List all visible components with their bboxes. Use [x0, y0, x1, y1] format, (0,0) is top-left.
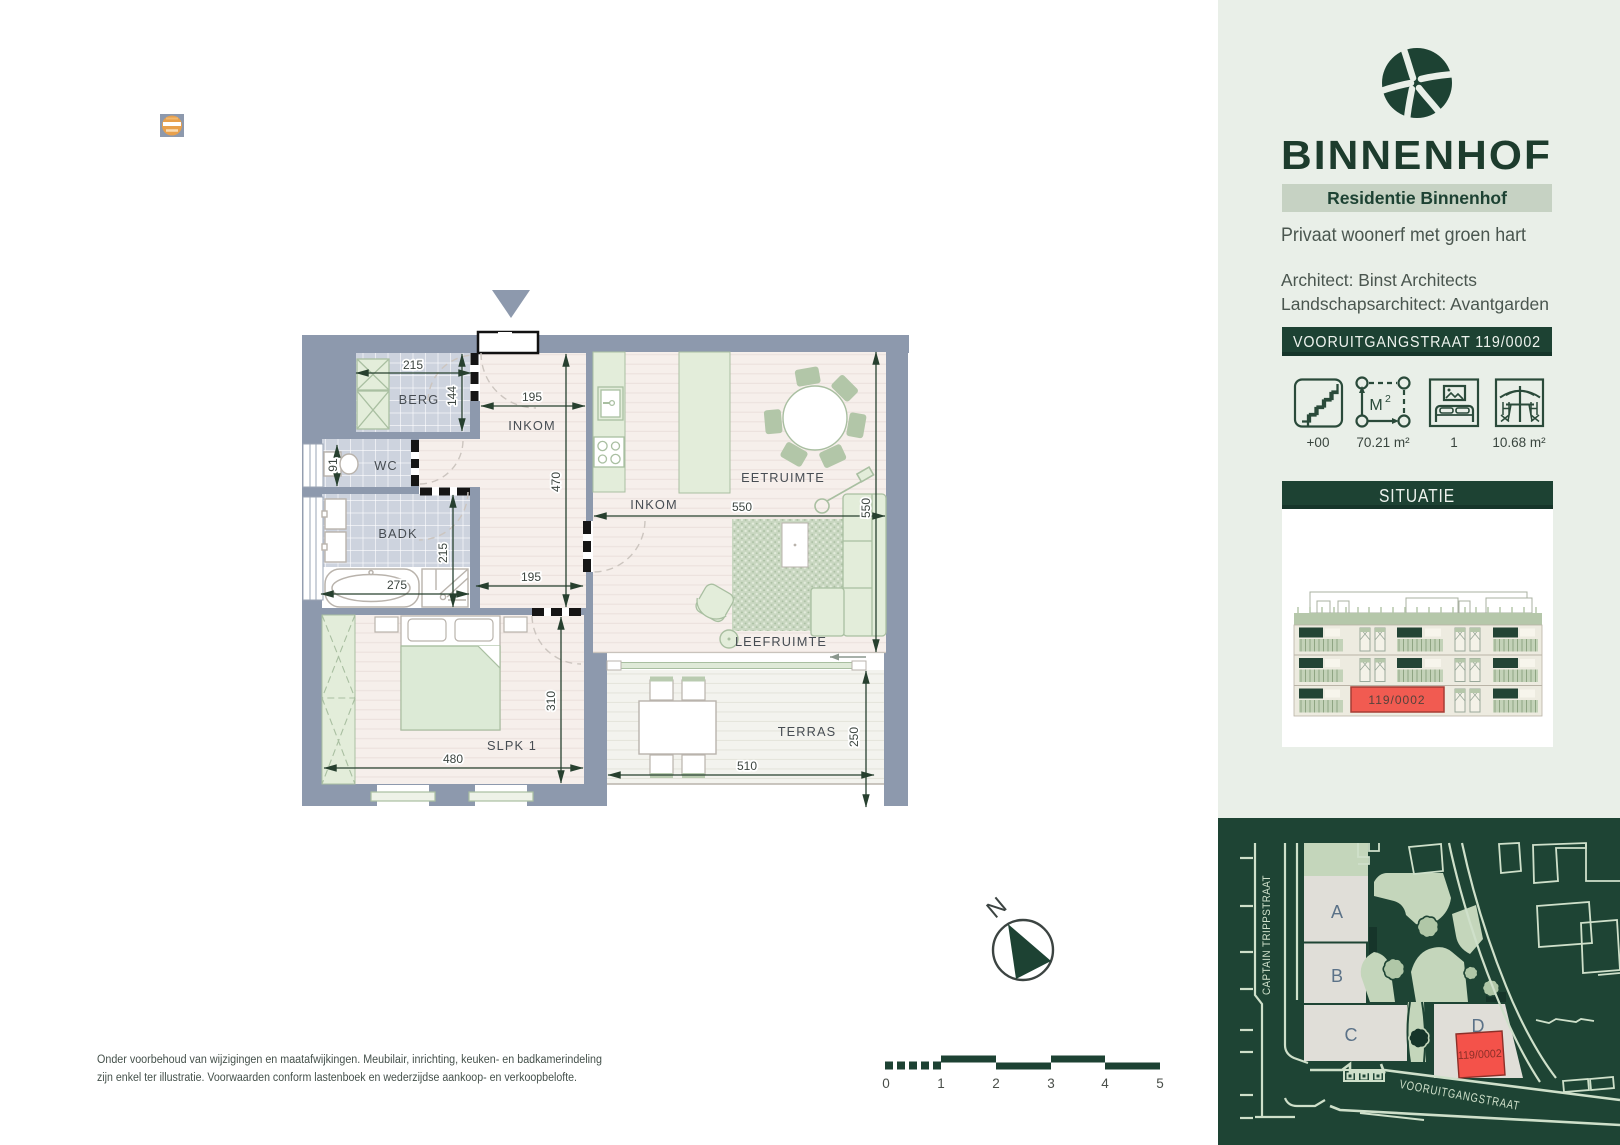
- svg-text:480: 480: [443, 752, 463, 766]
- svg-text:4: 4: [1101, 1076, 1109, 1091]
- svg-text:275: 275: [387, 578, 407, 592]
- svg-text:B: B: [1331, 966, 1343, 986]
- svg-text:BADK: BADK: [378, 526, 417, 541]
- svg-text:310: 310: [544, 691, 558, 711]
- svg-text:Architect: Binst Architects: Architect: Binst Architects: [1281, 270, 1477, 290]
- svg-text:SITUATIE: SITUATIE: [1379, 486, 1455, 506]
- svg-text:195: 195: [522, 390, 542, 404]
- svg-text:5: 5: [1156, 1076, 1164, 1091]
- svg-text:250: 250: [847, 727, 861, 747]
- svg-text:Landschapsarchitect: Avantgard: Landschapsarchitect: Avantgarden: [1281, 294, 1549, 314]
- svg-text:BINNENHOF: BINNENHOF: [1281, 132, 1552, 178]
- svg-text:Residentie Binnenhof: Residentie Binnenhof: [1327, 188, 1507, 208]
- svg-text:WC: WC: [374, 458, 398, 473]
- svg-text:VOORUITGANGSTRAAT 119/0002: VOORUITGANGSTRAAT 119/0002: [1293, 334, 1541, 351]
- svg-text:zijn enkel ter illustratie. Vo: zijn enkel ter illustratie. Voorwaarden …: [97, 1072, 577, 1084]
- svg-text:M: M: [1369, 397, 1382, 414]
- svg-text:C: C: [1345, 1025, 1358, 1045]
- svg-text:A: A: [1331, 902, 1343, 922]
- svg-text:3: 3: [1047, 1076, 1055, 1091]
- svg-text:215: 215: [403, 358, 423, 372]
- svg-text:550: 550: [732, 500, 752, 514]
- svg-text:SLPK 1: SLPK 1: [487, 738, 537, 753]
- svg-text:Privaat woonerf met groen hart: Privaat woonerf met groen hart: [1281, 225, 1527, 246]
- svg-text:0: 0: [882, 1076, 890, 1091]
- svg-text:550: 550: [859, 498, 873, 518]
- svg-text:195: 195: [521, 570, 541, 584]
- svg-text:BERG: BERG: [399, 392, 440, 407]
- svg-text:1: 1: [1450, 435, 1458, 450]
- svg-text:1: 1: [937, 1076, 945, 1091]
- svg-text:70.21 m²: 70.21 m²: [1356, 435, 1410, 450]
- svg-text:N: N: [982, 892, 1013, 924]
- svg-text:510: 510: [737, 759, 757, 773]
- svg-text:+00: +00: [1307, 435, 1330, 450]
- svg-text:2: 2: [1385, 393, 1391, 405]
- svg-text:215: 215: [436, 543, 450, 563]
- svg-text:INKOM: INKOM: [630, 497, 677, 512]
- svg-text:CAPTAIN TRIPPSTRAAT: CAPTAIN TRIPPSTRAAT: [1261, 875, 1273, 995]
- svg-text:INKOM: INKOM: [508, 418, 555, 433]
- svg-text:TERRAS: TERRAS: [778, 724, 837, 739]
- svg-text:LEEFRUIMTE: LEEFRUIMTE: [735, 634, 827, 649]
- svg-text:Onder voorbehoud van wijziging: Onder voorbehoud van wijzigingen en maat…: [97, 1054, 602, 1066]
- svg-text:91: 91: [326, 458, 340, 472]
- svg-text:144: 144: [445, 386, 459, 406]
- svg-text:10.68 m²: 10.68 m²: [1492, 435, 1546, 450]
- svg-text:2: 2: [992, 1076, 1000, 1091]
- svg-text:470: 470: [549, 472, 563, 492]
- svg-text:119/0002: 119/0002: [1368, 693, 1425, 707]
- svg-text:EETRUIMTE: EETRUIMTE: [741, 470, 825, 485]
- svg-text:119/0002: 119/0002: [1458, 1048, 1503, 1062]
